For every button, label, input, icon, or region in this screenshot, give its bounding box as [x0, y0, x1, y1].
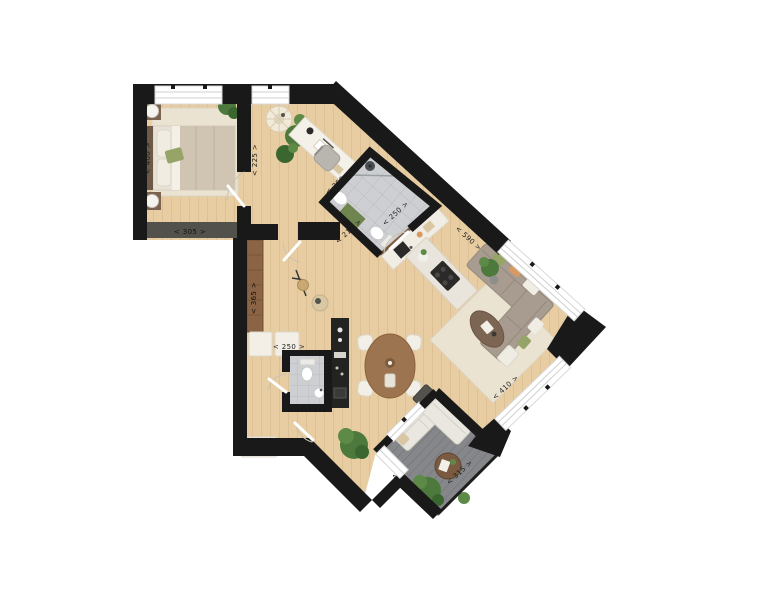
floor-plan: < 400 > < 305 > < 225 > < 250 > < 250 > … — [0, 0, 767, 614]
bedroom-window — [155, 85, 222, 104]
hall-cabinet-left — [249, 332, 272, 356]
wall-wc-left-upper — [282, 356, 290, 372]
dining-area — [357, 334, 422, 398]
dim-bedroom-width: < 305 > — [174, 228, 206, 236]
dim-bedroom-depth: < 400 > — [144, 142, 152, 174]
wall-bedroom-right-upper — [237, 84, 251, 172]
wc-sink — [314, 388, 324, 398]
wall-hall-top-right — [298, 222, 340, 240]
double-bed — [143, 126, 235, 190]
wall-bottom — [233, 438, 313, 456]
wall-wc-right — [324, 354, 332, 412]
wall-hall-top-left — [245, 224, 278, 240]
office-window — [252, 85, 289, 104]
lamp-bottom — [146, 195, 159, 208]
dim-hall-width: < 250 > — [273, 343, 305, 351]
kitchen-tall-unit — [331, 318, 349, 408]
wall-hall-left — [233, 238, 247, 450]
dim-hall-length: < 365 > — [250, 282, 258, 314]
dim-office-width: < 225 > — [251, 144, 259, 176]
floor-plan-canvas: < 400 > < 305 > < 225 > < 250 > < 250 > … — [0, 0, 767, 614]
rattan-chair — [266, 106, 292, 132]
wc — [290, 356, 324, 404]
lamp-top — [146, 105, 159, 118]
hall-stool — [312, 295, 328, 311]
